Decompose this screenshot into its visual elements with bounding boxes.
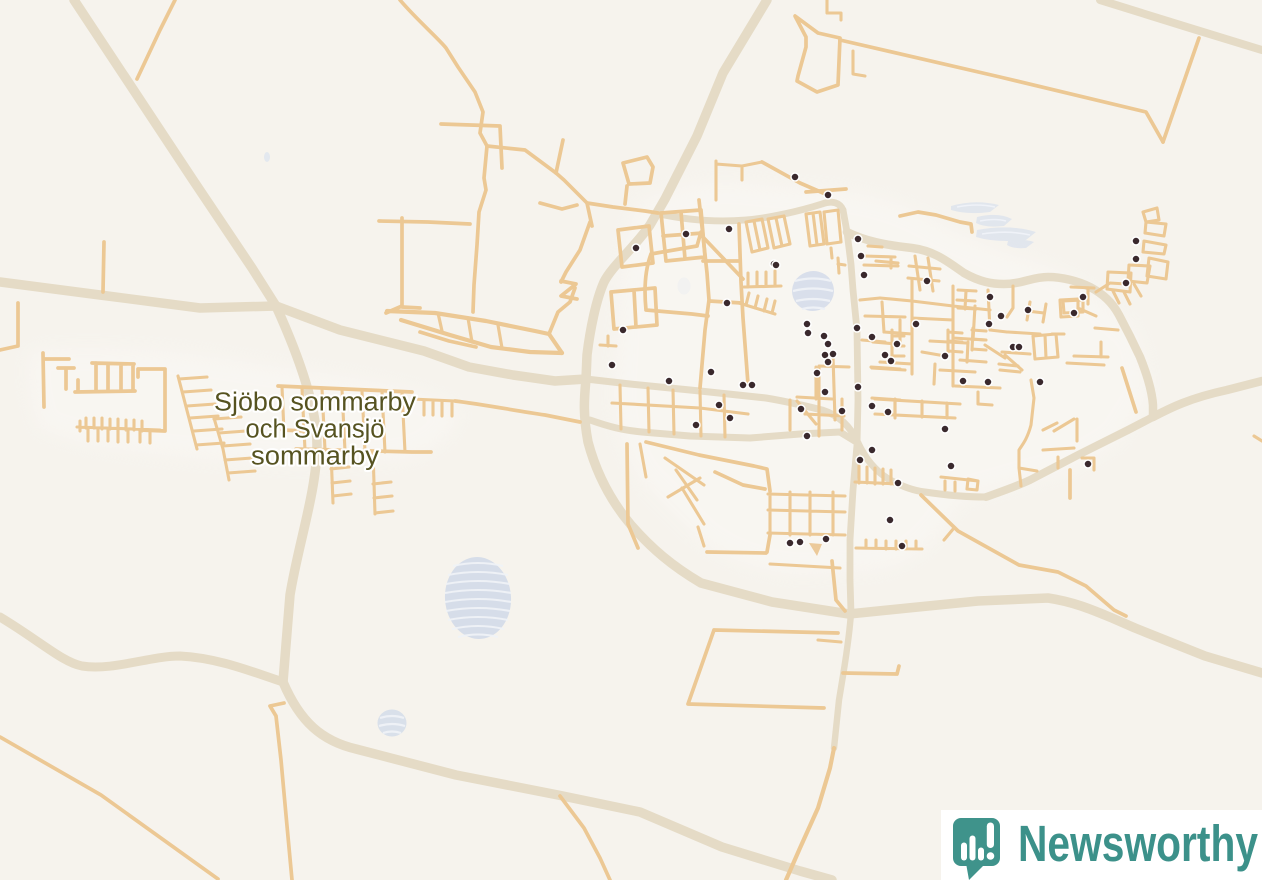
svg-text:sommarby: sommarby	[251, 443, 379, 471]
svg-text:Sjöbo sommarby: Sjöbo sommarby	[214, 389, 416, 417]
svg-text:Newsworthy: Newsworthy	[1018, 815, 1259, 872]
svg-text:och Svansjö: och Svansjö	[246, 416, 385, 444]
